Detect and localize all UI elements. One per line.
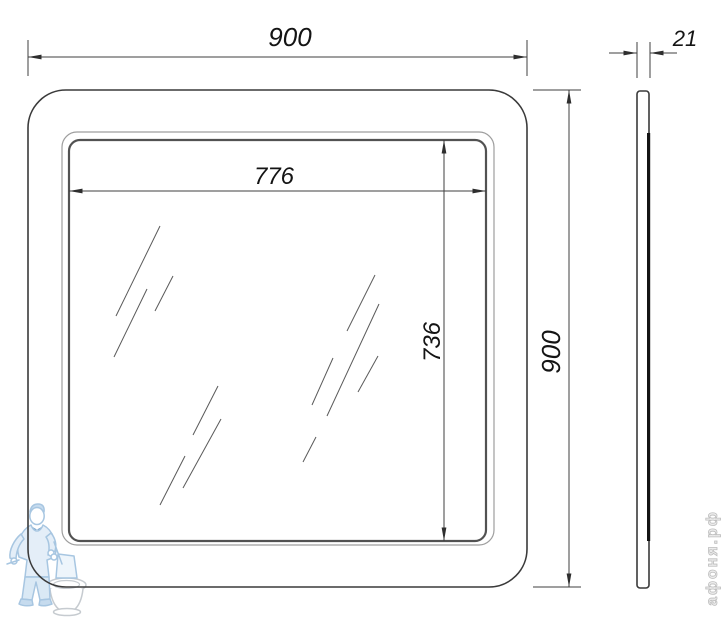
glass-reflections bbox=[114, 226, 379, 505]
reflection-line bbox=[193, 386, 218, 435]
side-view bbox=[637, 91, 649, 588]
reflection-line bbox=[116, 226, 160, 316]
dim-overall-width: 900 bbox=[28, 22, 527, 76]
reflection-line bbox=[327, 304, 379, 416]
dim-glass-width: 776 bbox=[69, 163, 486, 191]
reflection-line bbox=[160, 456, 185, 505]
dim-glass-height: 736 bbox=[419, 140, 446, 541]
overall-width-value: 900 bbox=[268, 22, 312, 52]
reflection-line bbox=[312, 358, 333, 405]
technical-drawing-canvas: 900 776 736 900 21 афоня.рф bbox=[0, 0, 728, 620]
toilet-icon bbox=[47, 578, 86, 616]
glass-width-value: 776 bbox=[254, 163, 295, 190]
reflection-line bbox=[303, 437, 316, 462]
reflection-line bbox=[114, 289, 147, 357]
reflection-line bbox=[155, 276, 173, 311]
glass-height-value: 736 bbox=[419, 321, 446, 362]
reflection-line bbox=[358, 356, 378, 392]
dim-overall-height: 900 bbox=[533, 90, 581, 587]
plumber-watermark-logo bbox=[7, 504, 86, 616]
overall-height-value: 900 bbox=[536, 330, 566, 374]
reflection-line bbox=[183, 419, 221, 488]
dim-depth: 21 bbox=[609, 26, 697, 78]
watermark-site-text: афоня.рф bbox=[704, 510, 721, 606]
depth-value: 21 bbox=[672, 26, 697, 51]
